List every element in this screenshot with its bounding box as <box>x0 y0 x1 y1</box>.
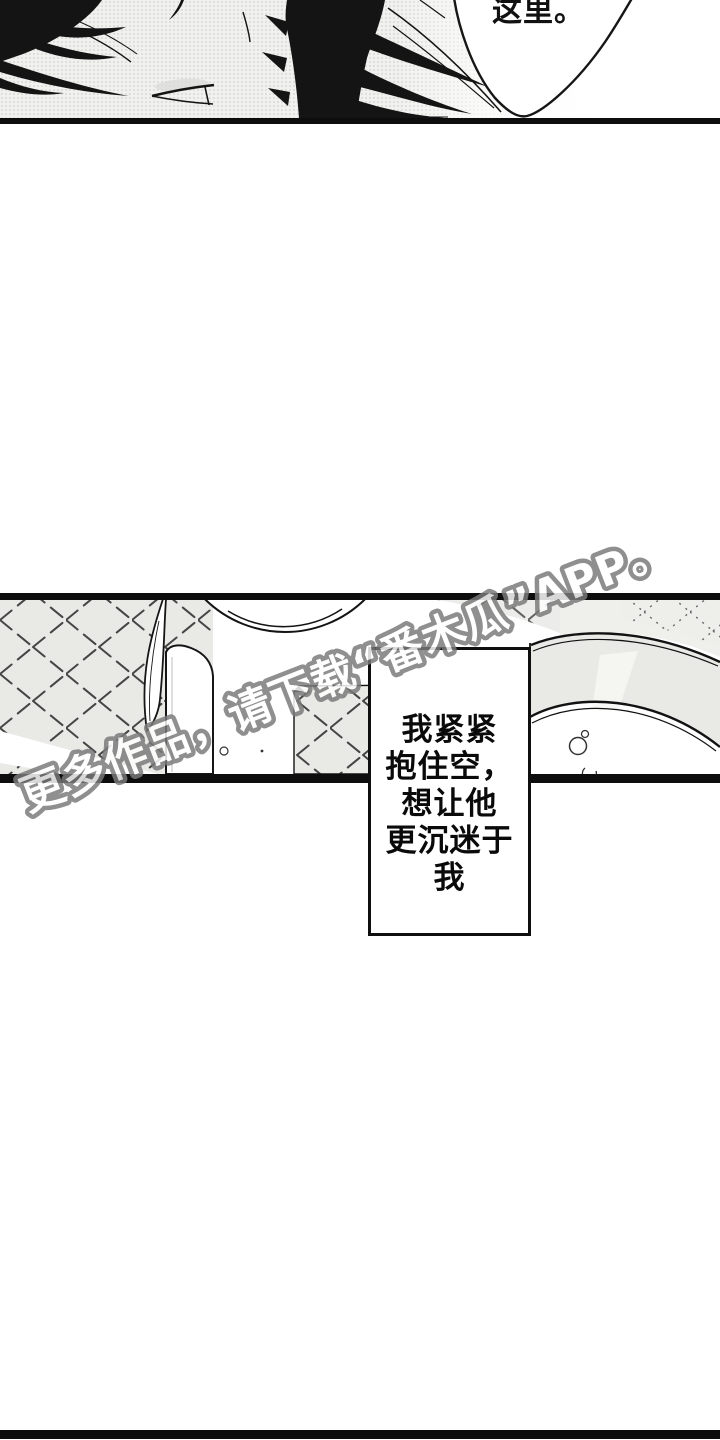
hair-strands-center <box>262 0 489 118</box>
manga-panel-top: 这里。 <box>0 0 720 124</box>
webtoon-page[interactable]: 这里。 <box>0 0 720 1440</box>
narration-line: 想让他 <box>402 786 498 823</box>
hair-artwork <box>0 0 720 118</box>
panel-border-bottom <box>0 1430 720 1439</box>
narration-box: 我紧紧 抱住空， 想让他 更沉迷于 我 <box>368 647 531 936</box>
bathroom-artwork <box>0 593 720 783</box>
tile-band-upper <box>437 600 565 635</box>
manga-panel-middle <box>0 593 720 783</box>
narration-line: 更沉迷于 <box>386 823 514 860</box>
narration-line: 我紧紧 <box>402 712 498 749</box>
panel-border-middle-top <box>0 593 720 600</box>
panel-border-middle-bottom <box>0 774 720 783</box>
narration-line: 抱住空， <box>386 749 514 786</box>
closed-eye <box>152 77 214 105</box>
vase <box>166 645 213 774</box>
speech-bubble-text: 这里。 <box>492 0 612 30</box>
narration-line: 我 <box>434 860 466 897</box>
panel-border-top <box>0 118 720 124</box>
bathtub <box>530 633 720 774</box>
hair-strands-left <box>0 0 184 96</box>
